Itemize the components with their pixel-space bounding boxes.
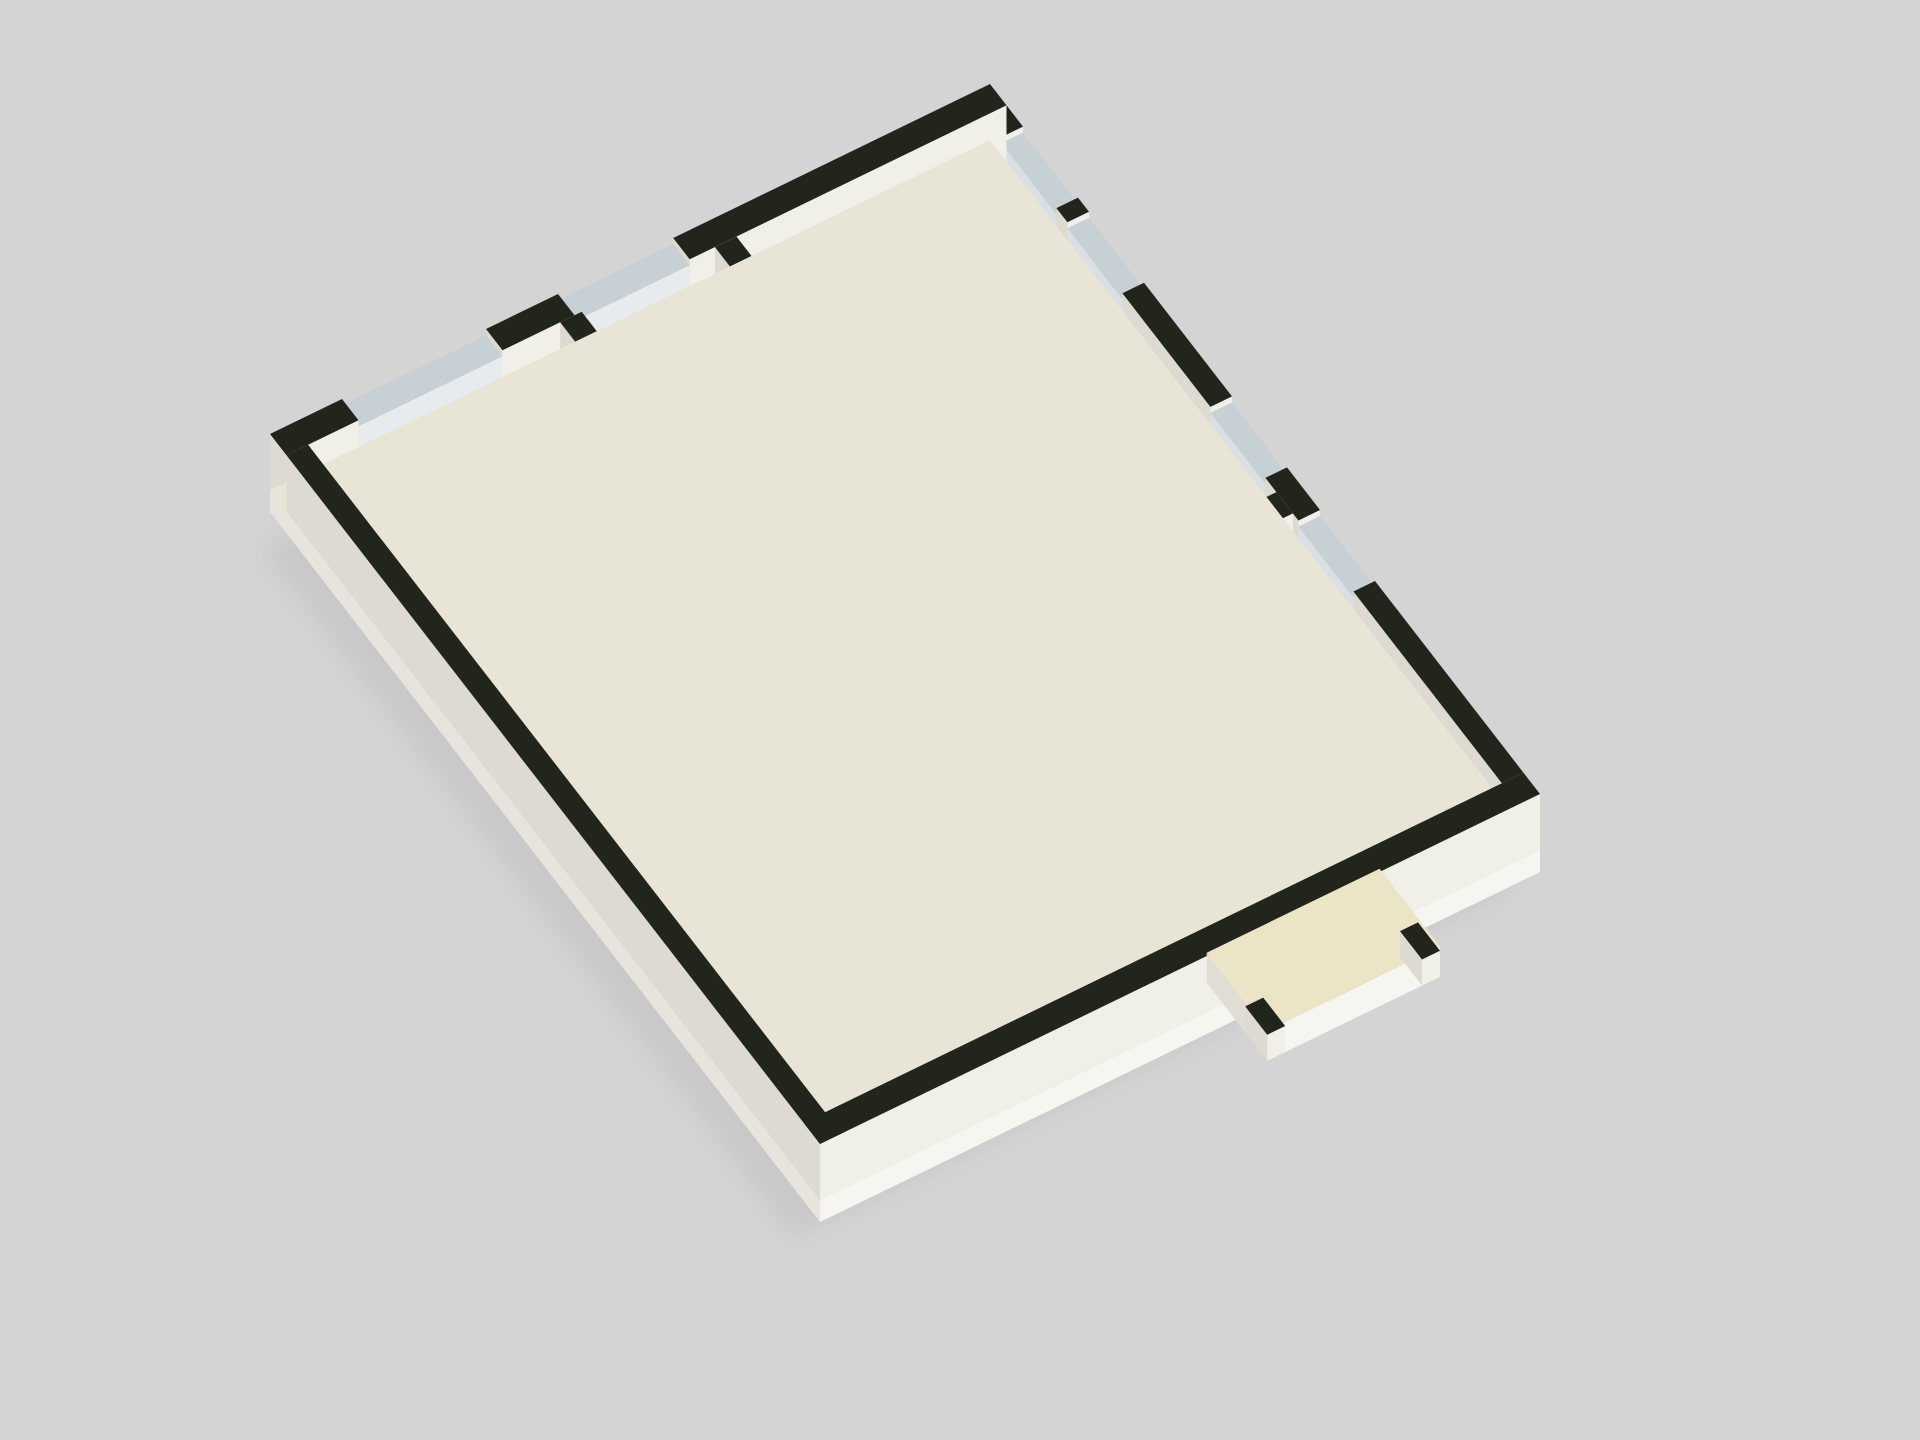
floor-plan-3d-render: [0, 0, 1920, 1440]
isometric-scene: [0, 0, 1920, 1440]
